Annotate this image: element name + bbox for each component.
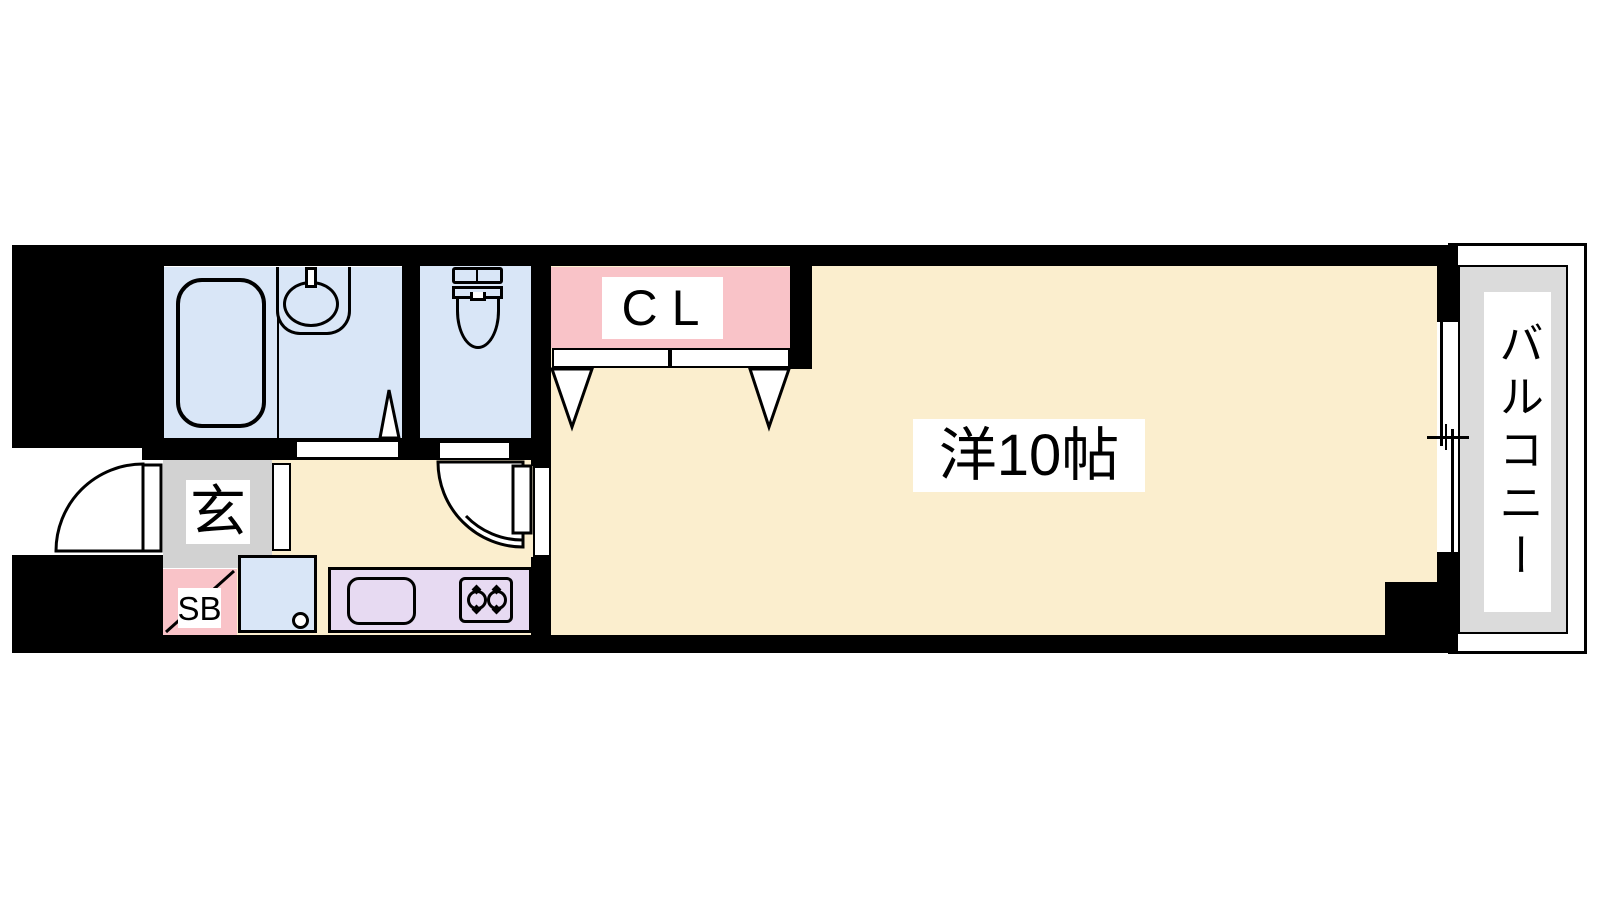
closet-label-text: CL: [622, 283, 714, 333]
entrance-label-text: 玄: [190, 484, 246, 540]
balcony-label: バルコニー: [1484, 292, 1551, 612]
balcony-label-text: バルコニー: [1495, 320, 1540, 585]
wall-bottom-left-block: [12, 555, 163, 653]
floor-plan: CL 玄 SB 洋10帖 バルコニー: [0, 0, 1600, 900]
wall-left-shaft-block: [12, 245, 164, 448]
entrance-door-swing: [56, 464, 143, 551]
entrance-label: 玄: [186, 480, 250, 544]
washer-drain-circle: [292, 612, 309, 629]
window-center-tick: [1427, 436, 1469, 439]
toilet-doorway: [438, 441, 511, 460]
basin-tap: [305, 267, 317, 288]
washroom-doorway: [295, 440, 400, 459]
entrance-step-board: [272, 463, 291, 551]
closet-door-left: [552, 348, 670, 368]
entrance-door-leaf: [143, 465, 161, 551]
main-room-label: 洋10帖: [913, 419, 1145, 492]
shoebox-label: SB: [178, 588, 221, 628]
wall-right-upper: [1437, 266, 1458, 322]
wall-toilet-right-upper: [531, 266, 551, 466]
room-doorway: [533, 466, 551, 557]
wall-bottom: [163, 635, 1458, 653]
bathtub: [176, 278, 266, 428]
main-room-label-text: 洋10帖: [939, 427, 1120, 485]
wall-top: [12, 245, 1458, 266]
window-pane-line-left: [1440, 322, 1443, 446]
kitchen-sink: [347, 577, 416, 625]
wall-bath-toilet-divider: [402, 266, 420, 438]
closet-label: CL: [602, 277, 723, 339]
wall-closet-right-stub: [790, 266, 812, 369]
closet-door-right: [670, 348, 790, 368]
window-pane-line-right: [1451, 429, 1454, 552]
shoebox-label-text: SB: [177, 592, 221, 625]
toilet-tank-divider: [476, 269, 478, 282]
